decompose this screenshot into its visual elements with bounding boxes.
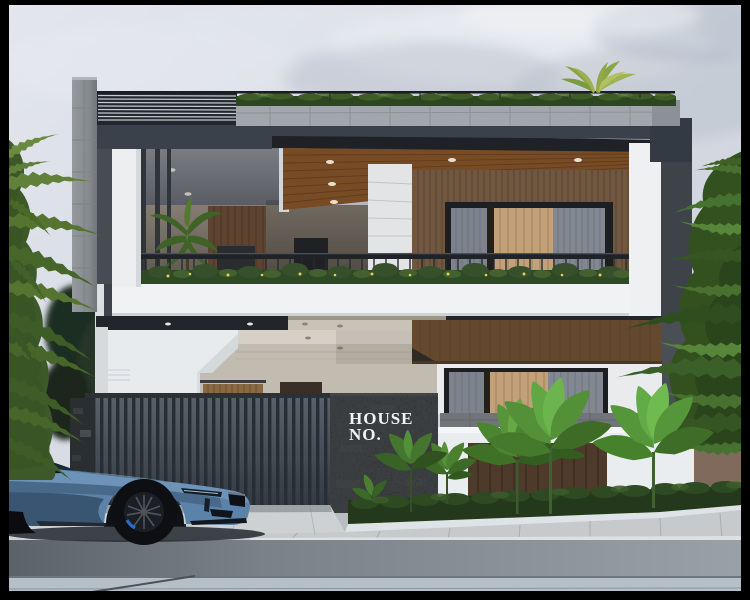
svg-text:NO.: NO. [349, 425, 382, 444]
